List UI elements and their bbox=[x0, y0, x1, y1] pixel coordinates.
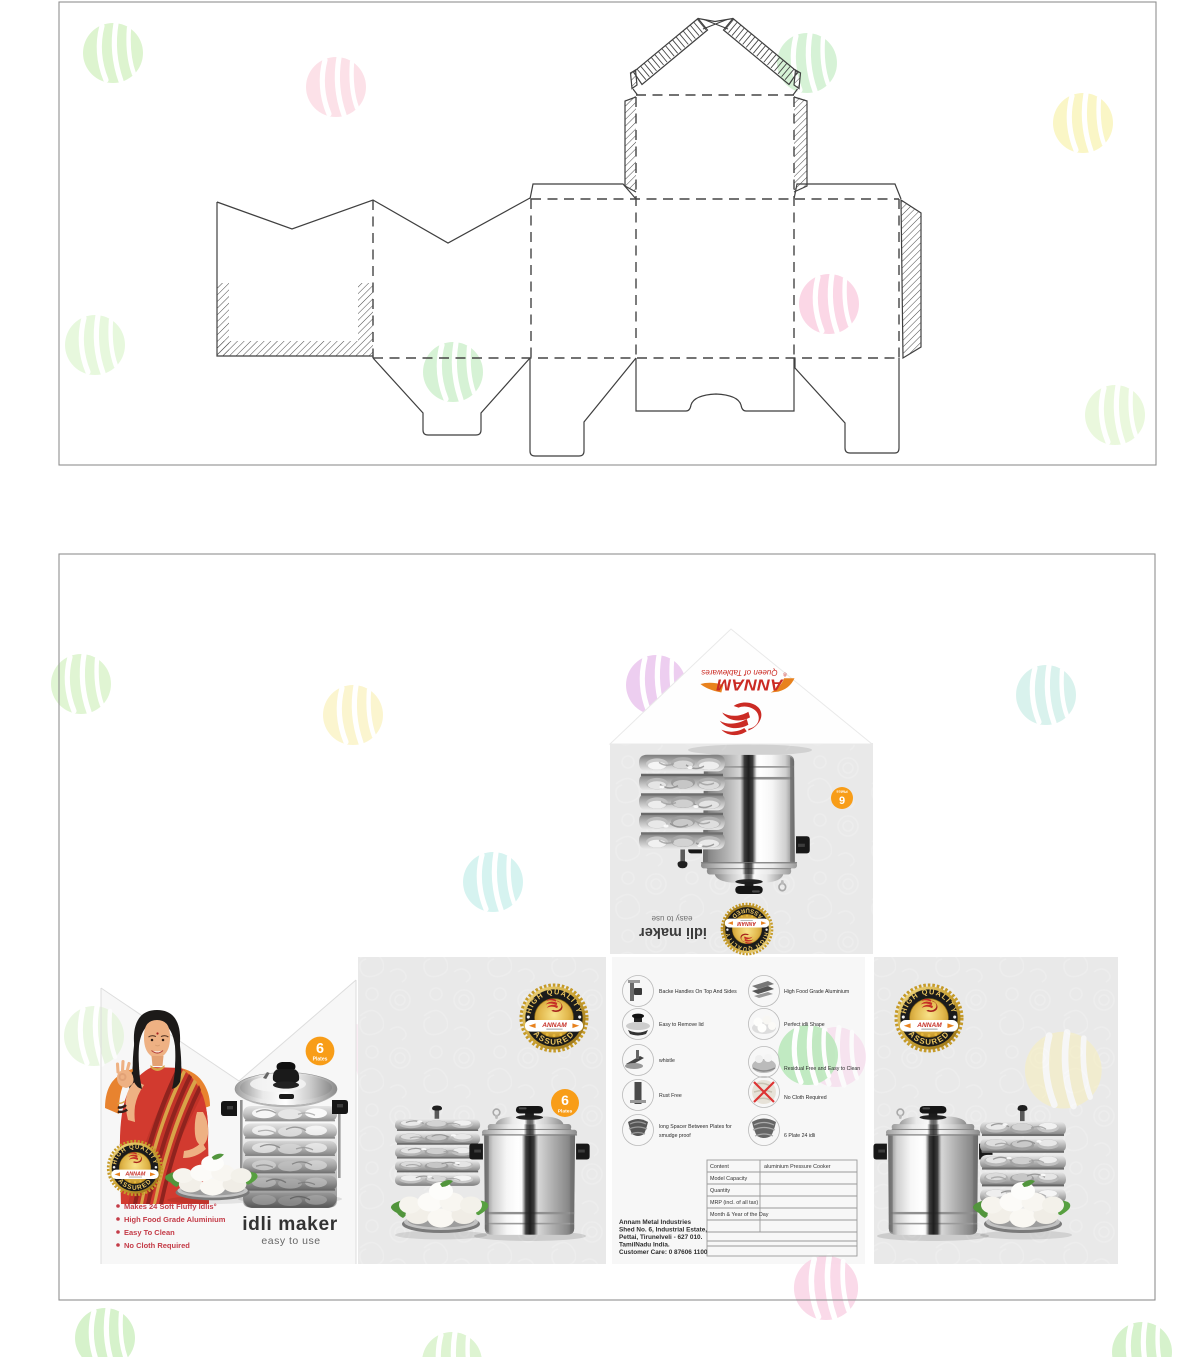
svg-text:Pettai, Tirunelveli - 627 010.: Pettai, Tirunelveli - 627 010. bbox=[619, 1234, 703, 1241]
svg-text:idli maker: idli maker bbox=[242, 1214, 338, 1235]
svg-text:MRP (incl. of all tax): MRP (incl. of all tax) bbox=[710, 1200, 758, 1206]
svg-text:Content: Content bbox=[710, 1164, 729, 1170]
svg-text:No Cloth Required: No Cloth Required bbox=[784, 1095, 827, 1101]
svg-text:Model Capacity: Model Capacity bbox=[710, 1176, 747, 1182]
svg-text:6 Plate 24 idli: 6 Plate 24 idli bbox=[784, 1133, 815, 1139]
svg-text:long Spacer Between Plates for: long Spacer Between Plates for bbox=[659, 1124, 732, 1130]
svg-text:No Cloth Required: No Cloth Required bbox=[124, 1241, 190, 1250]
svg-text:High Food Grade Aluminium: High Food Grade Aluminium bbox=[124, 1215, 226, 1224]
svg-text:idli maker: idli maker bbox=[639, 924, 707, 940]
svg-text:Annam Metal Industries: Annam Metal Industries bbox=[619, 1219, 692, 1226]
svg-text:Perfect idli Shape: Perfect idli Shape bbox=[784, 1022, 825, 1028]
svg-text:Month & Year of the Day: Month & Year of the Day bbox=[710, 1212, 769, 1218]
svg-text:easy to use: easy to use bbox=[651, 914, 692, 923]
svg-text:Customer Care: 0 87606 1100: Customer Care: 0 87606 1100 bbox=[619, 1249, 708, 1256]
svg-text:smudge proof: smudge proof bbox=[659, 1133, 691, 1139]
svg-text:Rust Free: Rust Free bbox=[659, 1093, 682, 1099]
svg-text:Residual Free and Easy to Clea: Residual Free and Easy to Clean bbox=[784, 1066, 860, 1072]
svg-text:High Food Grade Aluminium: High Food Grade Aluminium bbox=[784, 989, 849, 995]
svg-text:Easy To Clean: Easy To Clean bbox=[124, 1228, 175, 1237]
svg-text:Makes 24 Soft Fluffy Idlis°: Makes 24 Soft Fluffy Idlis° bbox=[124, 1202, 217, 1211]
svg-text:whistle: whistle bbox=[659, 1058, 675, 1064]
svg-text:Backe Handles On Top And Sides: Backe Handles On Top And Sides bbox=[659, 989, 737, 995]
svg-text:TamilNadu India.: TamilNadu India. bbox=[619, 1242, 670, 1249]
svg-text:easy to use: easy to use bbox=[261, 1235, 320, 1247]
svg-text:Easy to Remove lid: Easy to Remove lid bbox=[659, 1022, 704, 1028]
svg-text:aluminium Pressure Cooker: aluminium Pressure Cooker bbox=[764, 1164, 831, 1170]
svg-text:Shed No. 6, Industrial Estate,: Shed No. 6, Industrial Estate, bbox=[619, 1227, 707, 1234]
svg-text:Quantity: Quantity bbox=[710, 1188, 730, 1194]
